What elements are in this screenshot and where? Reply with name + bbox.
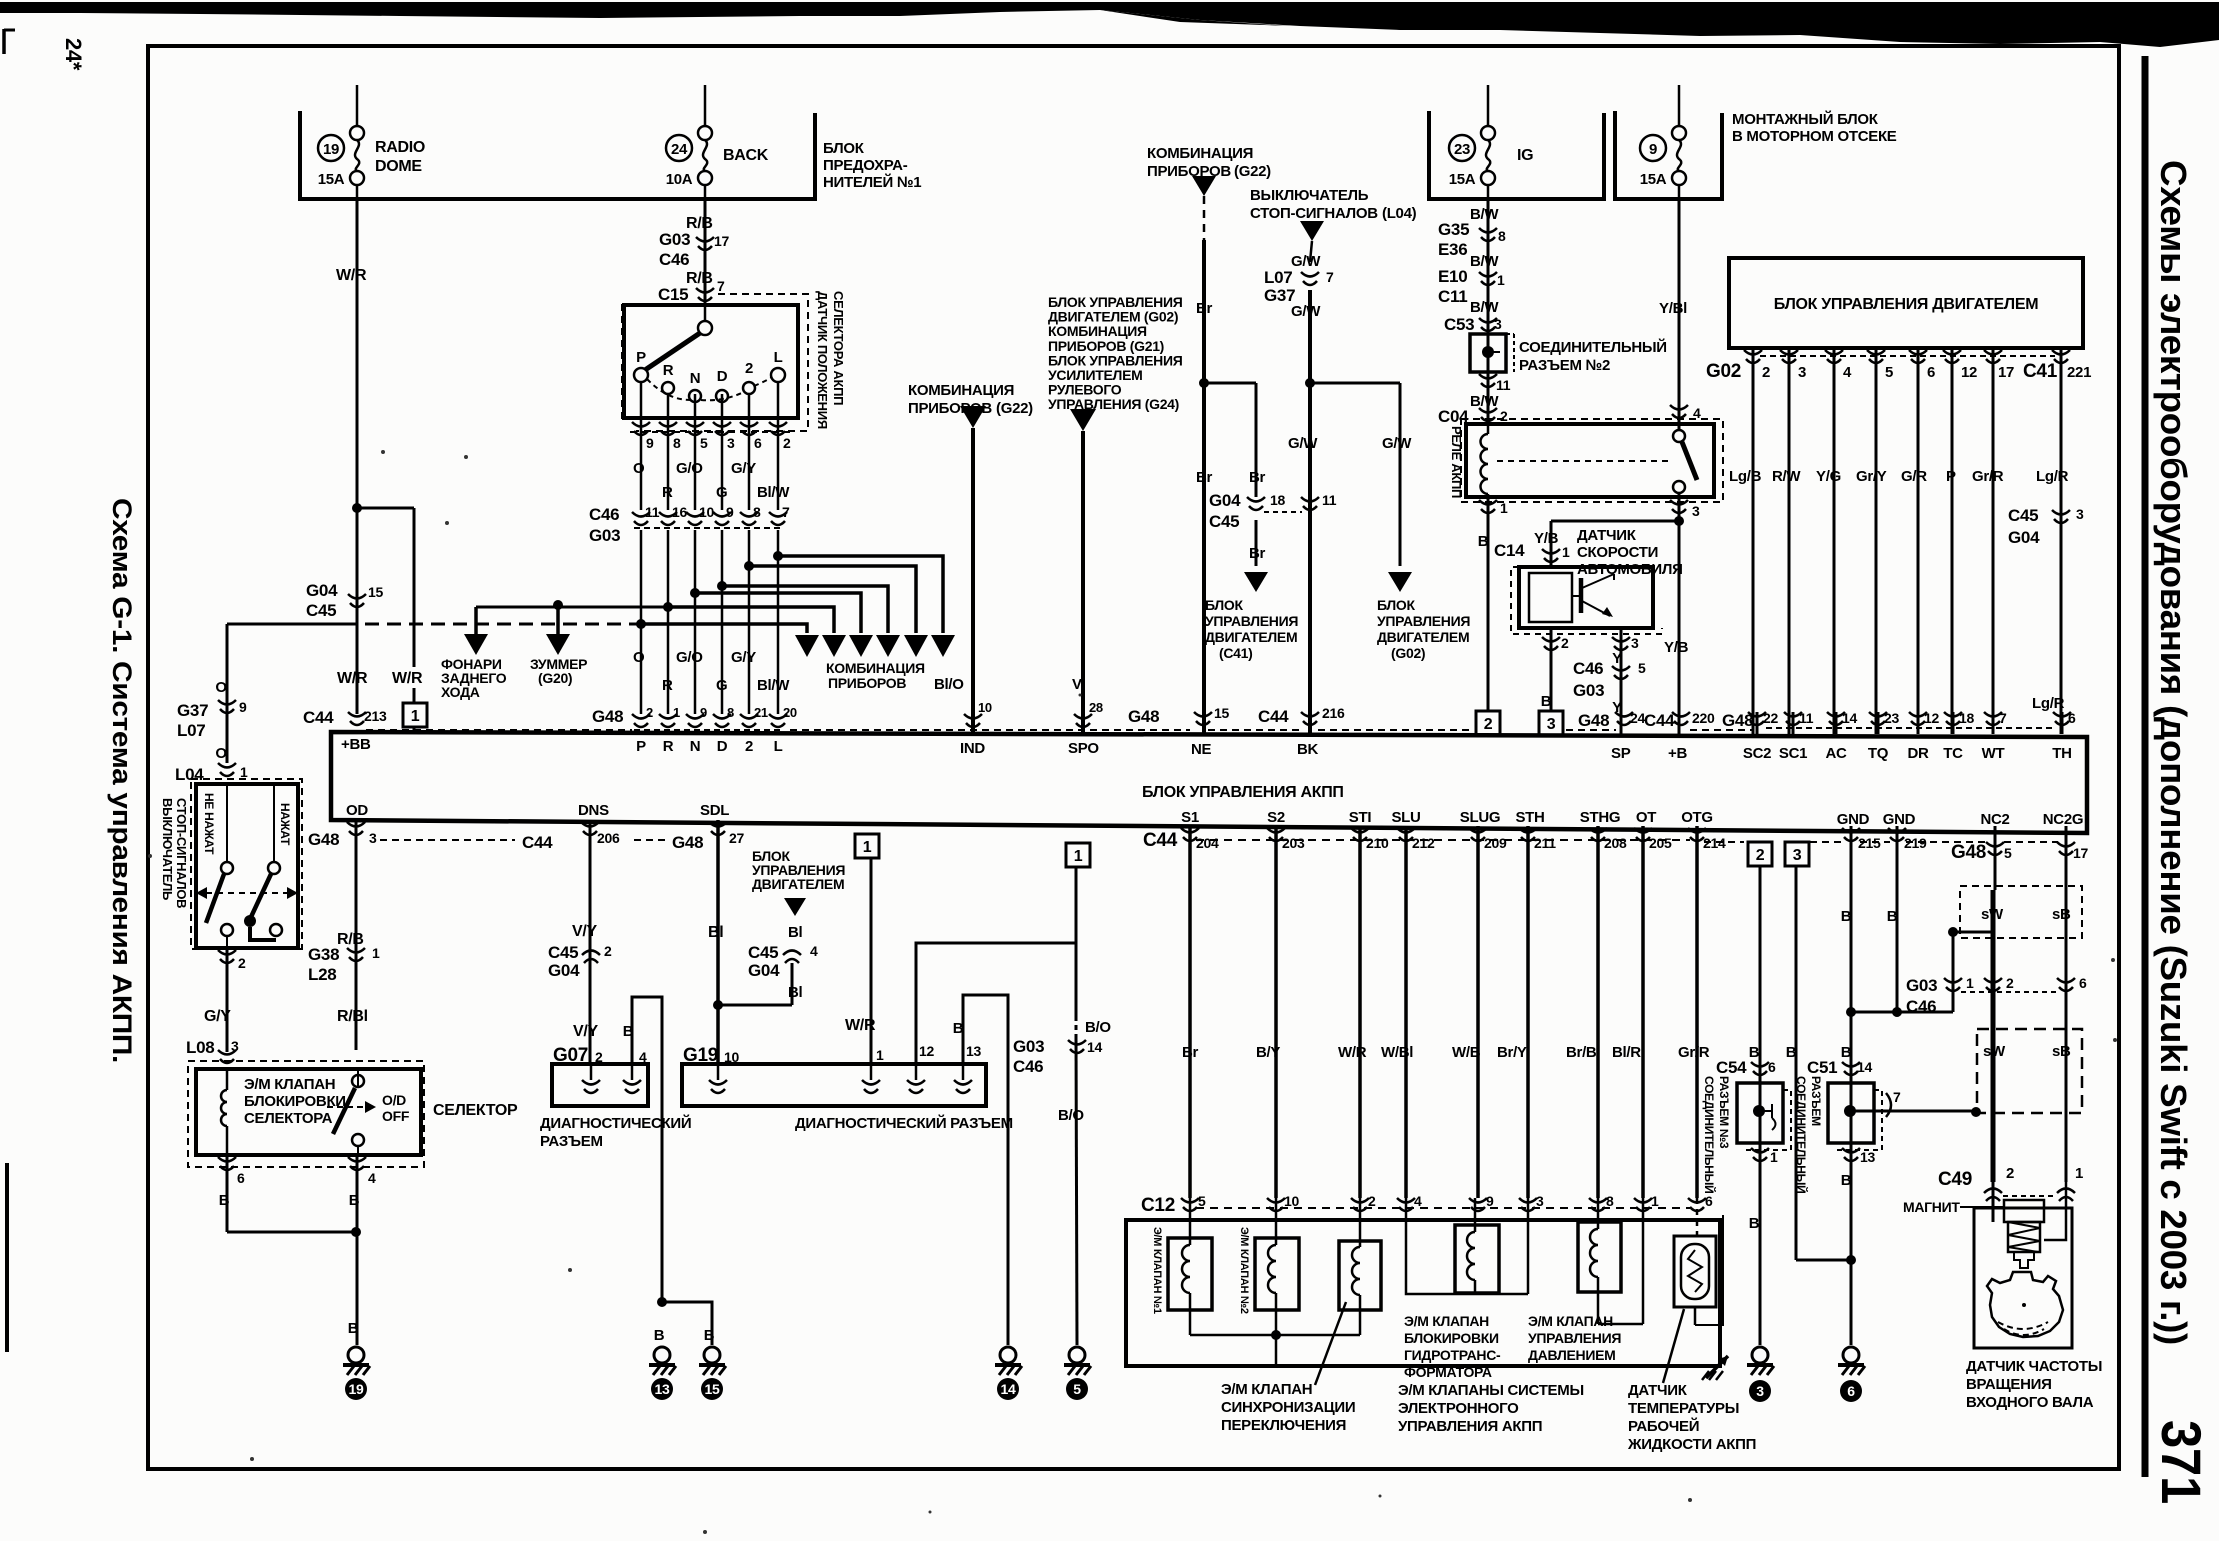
svg-text:W/R: W/R	[845, 1017, 876, 1034]
svg-text:G07: G07	[553, 1045, 588, 1066]
svg-text:Э/М КЛАПАН: Э/М КЛАПАН	[1528, 1313, 1613, 1329]
svg-text:B: B	[654, 1327, 665, 1344]
svg-text:5: 5	[1638, 660, 1646, 676]
svg-text:C49: C49	[1938, 1169, 1972, 1190]
svg-text:W/R: W/R	[392, 670, 423, 687]
svg-text:Lg/B: Lg/B	[1729, 468, 1762, 485]
svg-text:АВТОМОБИЛЯ: АВТОМОБИЛЯ	[1577, 561, 1683, 578]
svg-text:B: B	[1887, 908, 1898, 925]
svg-text:C44: C44	[522, 833, 553, 852]
svg-text:3: 3	[1793, 847, 1802, 864]
svg-text:11: 11	[1322, 492, 1337, 508]
svg-text:SLU: SLU	[1391, 809, 1420, 826]
svg-text:D: D	[717, 738, 728, 755]
svg-text:1: 1	[673, 705, 680, 720]
svg-text:C44: C44	[1258, 707, 1289, 726]
svg-text:C45: C45	[306, 601, 336, 620]
svg-text:213: 213	[364, 708, 387, 724]
svg-text:НЕ НАЖАТ: НЕ НАЖАТ	[202, 793, 216, 855]
svg-text:15: 15	[705, 1381, 720, 1397]
svg-text:C44: C44	[303, 708, 334, 727]
svg-text:ПРИБОРОВ: ПРИБОРОВ	[1147, 163, 1231, 180]
svg-text:B: B	[1478, 533, 1489, 550]
svg-text:ДВИГАТЕЛЕМ: ДВИГАТЕЛЕМ	[1205, 629, 1297, 645]
svg-text:8: 8	[1498, 228, 1506, 244]
svg-text:15A: 15A	[318, 171, 345, 188]
svg-text:TC: TC	[1943, 745, 1963, 762]
svg-text:216: 216	[1322, 705, 1345, 721]
svg-text:5: 5	[1198, 1193, 1206, 1209]
svg-text:13: 13	[1860, 1149, 1875, 1165]
svg-text:SP: SP	[1611, 745, 1631, 762]
svg-text:15: 15	[368, 584, 383, 600]
svg-text:220: 220	[1692, 710, 1715, 726]
svg-text:КОМБИНАЦИЯ: КОМБИНАЦИЯ	[1147, 145, 1253, 162]
svg-text:D: D	[717, 368, 728, 385]
svg-text:9: 9	[1649, 141, 1657, 158]
svg-text:7: 7	[1999, 710, 2007, 726]
svg-text:G04: G04	[2008, 528, 2040, 547]
svg-text:B/W: B/W	[1470, 393, 1499, 410]
svg-text:P: P	[1946, 468, 1956, 485]
svg-text:Y/B: Y/B	[1664, 639, 1689, 656]
svg-text:1: 1	[1074, 848, 1083, 865]
svg-text:БЛОКИРОВКИ: БЛОКИРОВКИ	[1404, 1330, 1499, 1346]
svg-text:GND: GND	[1837, 811, 1870, 828]
svg-text:6: 6	[1847, 1383, 1855, 1399]
svg-text:ЖИДКОСТИ АКПП: ЖИДКОСТИ АКПП	[1627, 1436, 1756, 1453]
svg-text:G37: G37	[177, 701, 208, 720]
svg-text:B: B	[1841, 1172, 1852, 1189]
svg-text:R/B: R/B	[686, 270, 713, 287]
svg-text:10: 10	[1284, 1193, 1299, 1209]
svg-text:28: 28	[1089, 700, 1103, 715]
svg-text:B: B	[1749, 1044, 1760, 1061]
svg-text:ДАТЧИК: ДАТЧИК	[1577, 527, 1637, 544]
svg-text:УПРАВЛЕНИЯ: УПРАВЛЕНИЯ	[1528, 1330, 1621, 1346]
svg-text:IND: IND	[960, 740, 985, 757]
svg-text:Bl/O: Bl/O	[934, 676, 964, 693]
svg-text:КОМБИНАЦИЯ: КОМБИНАЦИЯ	[826, 660, 925, 676]
svg-text:24*: 24*	[61, 38, 86, 71]
svg-text:ДАТЧИК: ДАТЧИК	[1628, 1382, 1688, 1399]
svg-text:Э/М КЛАПАН №2: Э/М КЛАПАН №2	[1238, 1227, 1250, 1314]
svg-text:(G22): (G22)	[996, 400, 1033, 417]
svg-text:15: 15	[1214, 705, 1229, 721]
svg-text:6: 6	[1705, 1193, 1713, 1209]
svg-text:4: 4	[1414, 1193, 1422, 1209]
svg-text:L04: L04	[175, 765, 204, 784]
svg-text:2: 2	[604, 943, 612, 959]
svg-text:12: 12	[1924, 710, 1939, 726]
svg-text:AC: AC	[1825, 745, 1847, 762]
svg-text:3: 3	[1798, 364, 1806, 381]
svg-text:20: 20	[783, 705, 797, 720]
svg-text:Bl/W: Bl/W	[757, 677, 790, 694]
svg-text:13: 13	[966, 1043, 981, 1059]
svg-text:G03: G03	[1013, 1037, 1044, 1056]
svg-text:1: 1	[411, 708, 420, 725]
svg-text:B/W: B/W	[1470, 253, 1499, 270]
svg-text:G04: G04	[1209, 491, 1241, 510]
svg-text:+BB: +BB	[341, 736, 371, 753]
svg-text:5: 5	[1885, 364, 1893, 381]
svg-text:L08: L08	[186, 1038, 214, 1057]
svg-text:C45: C45	[748, 943, 778, 962]
svg-text:Y/G: Y/G	[1816, 468, 1841, 485]
svg-text:УПРАВЛЕНИЯ АКПП: УПРАВЛЕНИЯ АКПП	[1398, 1418, 1542, 1435]
svg-text:Gr/R: Gr/R	[1678, 1044, 1710, 1061]
svg-text:V/Y: V/Y	[573, 1023, 599, 1040]
svg-text:СЕЛЕКТОР: СЕЛЕКТОР	[433, 1102, 518, 1119]
svg-text:OTG: OTG	[1681, 809, 1713, 826]
svg-text:10: 10	[724, 1049, 739, 1065]
svg-text:Lg/R: Lg/R	[2036, 468, 2069, 485]
svg-text:БЛОК: БЛОК	[1377, 597, 1416, 613]
svg-text:OD: OD	[346, 802, 368, 819]
svg-text:SDL: SDL	[700, 802, 729, 819]
svg-text:Y/B: Y/B	[1534, 530, 1559, 547]
svg-text:B/W: B/W	[1470, 206, 1499, 223]
svg-text:СТОП-СИГНАЛОВ: СТОП-СИГНАЛОВ	[174, 798, 189, 908]
svg-text:371: 371	[2150, 1420, 2213, 1504]
svg-text:9: 9	[700, 705, 707, 720]
svg-text:ДИАГНОСТИЧЕСКИЙ РАЗЪЕМ: ДИАГНОСТИЧЕСКИЙ РАЗЪЕМ	[795, 1114, 1013, 1132]
svg-text:G/W: G/W	[1288, 435, 1318, 452]
svg-text:W/B: W/B	[1452, 1044, 1481, 1061]
svg-text:ГИДРОТРАНС-: ГИДРОТРАНС-	[1404, 1347, 1501, 1363]
svg-text:C46: C46	[1573, 659, 1603, 678]
svg-text:Gr/Y: Gr/Y	[1856, 468, 1887, 485]
svg-text:РАБОЧЕЙ: РАБОЧЕЙ	[1628, 1417, 1699, 1435]
svg-text:sB: sB	[2052, 906, 2071, 923]
svg-text:14: 14	[1087, 1039, 1102, 1055]
svg-text:G/Y: G/Y	[731, 460, 756, 477]
svg-text:СКОРОСТИ: СКОРОСТИ	[1577, 544, 1658, 561]
svg-text:6: 6	[1768, 1059, 1776, 1075]
svg-text:B/O: B/O	[1058, 1107, 1084, 1124]
svg-text:10A: 10A	[666, 171, 693, 188]
svg-text:13: 13	[655, 1381, 670, 1397]
svg-text:3: 3	[1631, 635, 1639, 651]
svg-text:B: B	[704, 1327, 715, 1344]
svg-text:10: 10	[699, 504, 714, 520]
svg-text:4: 4	[1693, 405, 1701, 421]
svg-text:2: 2	[646, 705, 653, 720]
svg-text:SC2: SC2	[1743, 745, 1771, 762]
svg-text:3: 3	[1536, 1193, 1544, 1209]
svg-text:Э/М КЛАПАН: Э/М КЛАПАН	[1221, 1381, 1312, 1398]
svg-text:sW: sW	[1983, 1043, 2006, 1060]
svg-text:Br: Br	[1196, 469, 1213, 486]
svg-text:Bl/W: Bl/W	[757, 484, 790, 501]
svg-text:Bl: Bl	[708, 924, 723, 941]
svg-text:P: P	[636, 349, 646, 366]
svg-text:G/R: G/R	[1901, 468, 1927, 485]
svg-text:3: 3	[369, 830, 377, 846]
svg-text:ВЫКЛЮЧАТЕЛЬ: ВЫКЛЮЧАТЕЛЬ	[1250, 187, 1369, 204]
svg-text:14: 14	[1842, 710, 1857, 726]
svg-text:ПРИБОРОВ: ПРИБОРОВ	[828, 675, 906, 691]
svg-text:1: 1	[2075, 1165, 2083, 1182]
svg-text:Bl: Bl	[788, 924, 803, 941]
svg-text:НАЖАТ: НАЖАТ	[278, 803, 292, 846]
svg-text:(G20): (G20)	[538, 670, 572, 686]
svg-text:S2: S2	[1267, 809, 1285, 826]
svg-text:DOME: DOME	[375, 158, 422, 175]
svg-text:G/W: G/W	[1291, 303, 1321, 320]
svg-text:ХОДА: ХОДА	[441, 684, 480, 700]
svg-text:L: L	[774, 738, 783, 755]
svg-text:БЛОК УПРАВЛЕНИЯ ДВИГАТЕЛЕМ: БЛОК УПРАВЛЕНИЯ ДВИГАТЕЛЕМ	[1774, 296, 2038, 313]
svg-text:204: 204	[1196, 835, 1219, 851]
svg-text:4: 4	[639, 1049, 647, 1065]
svg-text:BK: BK	[1297, 741, 1319, 758]
svg-text:OT: OT	[1636, 809, 1656, 826]
svg-text:5: 5	[1073, 1381, 1081, 1397]
svg-text:2: 2	[1561, 635, 1569, 651]
svg-text:9: 9	[1486, 1193, 1494, 1209]
svg-text:G/O: G/O	[676, 649, 703, 666]
svg-text:203: 203	[1282, 835, 1305, 851]
svg-text:2: 2	[783, 435, 791, 451]
svg-text:C44: C44	[1143, 830, 1178, 851]
svg-text:C44: C44	[1644, 711, 1675, 730]
svg-text:B: B	[1541, 693, 1552, 710]
svg-text:TH: TH	[2052, 745, 2071, 762]
svg-text:219: 219	[1904, 835, 1927, 851]
svg-text:ДВИГАТЕЛЕМ: ДВИГАТЕЛЕМ	[752, 876, 844, 892]
svg-text:2: 2	[2006, 1165, 2014, 1182]
svg-text:1: 1	[1562, 544, 1570, 560]
svg-text:G04: G04	[748, 961, 780, 980]
svg-text:O: O	[215, 679, 227, 696]
svg-text:12: 12	[1961, 364, 1977, 381]
svg-text:3: 3	[1756, 1383, 1764, 1399]
svg-text:6: 6	[2068, 710, 2076, 726]
svg-text:G48: G48	[1128, 707, 1159, 726]
svg-text:МОНТАЖНЫЙ БЛОК: МОНТАЖНЫЙ БЛОК	[1732, 110, 1879, 128]
svg-text:G48: G48	[1578, 711, 1609, 730]
svg-text:Br: Br	[1182, 1044, 1199, 1061]
svg-text:16: 16	[672, 504, 687, 520]
svg-text:O: O	[633, 649, 645, 666]
svg-text:SPO: SPO	[1068, 740, 1099, 757]
svg-text:МАГНИТ: МАГНИТ	[1903, 1199, 1960, 1215]
svg-text:3: 3	[1547, 716, 1556, 733]
svg-text:УПРАВЛЕНИЯ (G24): УПРАВЛЕНИЯ (G24)	[1048, 396, 1179, 412]
svg-text:W/R: W/R	[336, 267, 367, 284]
svg-text:СИНХРОНИЗАЦИИ: СИНХРОНИЗАЦИИ	[1221, 1399, 1355, 1416]
svg-text:18: 18	[1959, 710, 1974, 726]
svg-text:1: 1	[372, 945, 380, 961]
svg-text:STI: STI	[1349, 809, 1372, 826]
svg-text:2: 2	[745, 360, 753, 377]
svg-text:B/O: B/O	[1085, 1019, 1111, 1036]
svg-text:R: R	[663, 738, 674, 755]
svg-text:СОЕДИНИТЕЛЬНЫЙ: СОЕДИНИТЕЛЬНЫЙ	[1519, 338, 1667, 356]
svg-text:NC2G: NC2G	[2043, 811, 2083, 828]
svg-text:NC2: NC2	[1980, 811, 2009, 828]
svg-text:4: 4	[810, 943, 818, 959]
svg-text:S1: S1	[1181, 809, 1199, 826]
svg-text:ДИАГНОСТИЧЕСКИЙ: ДИАГНОСТИЧЕСКИЙ	[540, 1114, 691, 1132]
svg-text:B: B	[219, 1192, 230, 1209]
svg-text:L07: L07	[1264, 268, 1292, 287]
svg-text:STHG: STHG	[1580, 809, 1620, 826]
svg-text:(G02): (G02)	[1391, 645, 1425, 661]
svg-text:206: 206	[597, 830, 620, 846]
svg-text:G04: G04	[306, 581, 338, 600]
svg-text:ДВИГАТЕЛЕМ (G02): ДВИГАТЕЛЕМ (G02)	[1048, 309, 1178, 325]
svg-text:Br/Y: Br/Y	[1497, 1044, 1527, 1061]
svg-text:2: 2	[1484, 716, 1493, 733]
svg-text:P: P	[636, 738, 646, 755]
svg-text:2: 2	[1500, 408, 1508, 424]
svg-text:21: 21	[754, 705, 768, 720]
svg-text:O: O	[215, 745, 227, 762]
svg-text:B/Y: B/Y	[1256, 1044, 1280, 1061]
svg-text:C46: C46	[1906, 997, 1936, 1016]
svg-text:Э/М КЛАПАН: Э/М КЛАПАН	[1404, 1313, 1489, 1329]
svg-text:214: 214	[1703, 835, 1726, 851]
svg-text:19: 19	[349, 1381, 364, 1397]
svg-text:КОМБИНАЦИЯ: КОМБИНАЦИЯ	[908, 382, 1014, 399]
svg-text:2: 2	[1368, 1193, 1376, 1209]
svg-text:R: R	[663, 362, 674, 379]
svg-text:12: 12	[919, 1043, 934, 1059]
svg-text:R/W: R/W	[1772, 468, 1801, 485]
svg-text:B: B	[348, 1320, 359, 1337]
svg-text:B: B	[1786, 1044, 1797, 1061]
svg-text:R/B: R/B	[337, 931, 364, 948]
svg-text:ЭЛЕКТРОННОГО: ЭЛЕКТРОННОГО	[1398, 1400, 1519, 1417]
svg-text:ПЕРЕКЛЮЧЕНИЯ: ПЕРЕКЛЮЧЕНИЯ	[1221, 1417, 1346, 1434]
svg-text:2: 2	[1756, 847, 1765, 864]
svg-text:ДАТЧИК ЧАСТОТЫ: ДАТЧИК ЧАСТОТЫ	[1966, 1358, 2102, 1375]
svg-text:РЕЛЕ АКПП: РЕЛЕ АКПП	[1449, 426, 1464, 498]
svg-text:C12: C12	[1141, 1195, 1175, 1216]
svg-text:8: 8	[673, 435, 681, 451]
svg-text:3: 3	[1692, 503, 1700, 519]
svg-text:C45: C45	[2008, 506, 2038, 525]
svg-text:Gr/R: Gr/R	[1972, 468, 2004, 485]
svg-text:E36: E36	[1438, 240, 1467, 259]
svg-text:СОЕДИНИТЕЛЬНЫЙ: СОЕДИНИТЕЛЬНЫЙ	[1702, 1076, 1717, 1193]
svg-text:Bl: Bl	[788, 984, 803, 1001]
svg-text:УСИЛИТЕЛЕМ: УСИЛИТЕЛЕМ	[1048, 367, 1142, 383]
svg-text:G: G	[716, 677, 727, 694]
svg-text:STH: STH	[1515, 809, 1544, 826]
svg-text:SC1: SC1	[1779, 745, 1807, 762]
svg-text:G04: G04	[548, 961, 580, 980]
svg-text:C51: C51	[1807, 1058, 1837, 1077]
svg-text:L07: L07	[177, 721, 205, 740]
svg-text:ФОРМАТОРА: ФОРМАТОРА	[1404, 1364, 1492, 1380]
svg-text:G48: G48	[592, 707, 623, 726]
svg-text:W/Bl: W/Bl	[1381, 1044, 1413, 1061]
svg-text:G19: G19	[683, 1045, 718, 1066]
svg-text:G03: G03	[659, 230, 690, 249]
svg-text:1: 1	[240, 764, 248, 780]
svg-text:N: N	[690, 738, 701, 755]
svg-text:8: 8	[753, 504, 761, 520]
svg-text:22: 22	[1763, 710, 1778, 726]
svg-text:(G22): (G22)	[1234, 163, 1271, 180]
svg-text:ДВИГАТЕЛЕМ: ДВИГАТЕЛЕМ	[1377, 629, 1469, 645]
svg-text:G03: G03	[589, 526, 620, 545]
svg-text:G/Y: G/Y	[731, 649, 756, 666]
svg-text:10: 10	[978, 700, 992, 715]
svg-text:УПРАВЛЕНИЯ: УПРАВЛЕНИЯ	[1205, 613, 1298, 629]
svg-text:ПРИБОРОВ (G21): ПРИБОРОВ (G21)	[1048, 338, 1164, 354]
svg-text:5: 5	[2004, 845, 2012, 861]
svg-text:O: O	[633, 460, 645, 477]
svg-text:L: L	[774, 349, 783, 366]
svg-text:23: 23	[1454, 141, 1470, 158]
svg-text:7: 7	[1893, 1089, 1901, 1105]
svg-text:1: 1	[1770, 1149, 1778, 1165]
svg-text:G02: G02	[1706, 361, 1741, 382]
svg-text:2: 2	[595, 1049, 603, 1065]
svg-text:27: 27	[729, 830, 744, 846]
svg-text:2: 2	[2006, 975, 2014, 991]
svg-text:РАЗЪЕМ: РАЗЪЕМ	[1809, 1076, 1823, 1126]
svg-text:+B: +B	[1668, 745, 1687, 762]
svg-text:G48: G48	[308, 830, 339, 849]
svg-text:B/W: B/W	[1470, 299, 1499, 316]
svg-text:6: 6	[754, 435, 762, 451]
svg-text:ТЕМПЕРАТУРЫ: ТЕМПЕРАТУРЫ	[1628, 1400, 1739, 1417]
svg-text:1: 1	[1966, 975, 1974, 991]
svg-text:B: B	[1749, 1215, 1760, 1232]
svg-text:B: B	[953, 1020, 964, 1037]
svg-text:СОЕДИНИТЕЛЬНЫЙ: СОЕДИНИТЕЛЬНЫЙ	[1794, 1076, 1809, 1193]
svg-text:НИТЕЛЕЙ №1: НИТЕЛЕЙ №1	[823, 173, 921, 191]
svg-text:ВЫКЛЮЧАТЕЛЬ: ВЫКЛЮЧАТЕЛЬ	[160, 798, 175, 900]
svg-text:8: 8	[1606, 1193, 1614, 1209]
svg-text:205: 205	[1649, 835, 1672, 851]
svg-text:7: 7	[717, 278, 725, 294]
svg-text:DR: DR	[1907, 745, 1929, 762]
svg-text:Br: Br	[1196, 300, 1213, 317]
svg-text:ВРАЩЕНИЯ: ВРАЩЕНИЯ	[1966, 1376, 2052, 1393]
svg-text:212: 212	[1412, 835, 1435, 851]
svg-text:РАЗЪЕМ: РАЗЪЕМ	[540, 1133, 603, 1150]
svg-text:SLUG: SLUG	[1460, 809, 1500, 826]
svg-text:BACK: BACK	[723, 147, 769, 164]
svg-text:G/W: G/W	[1291, 253, 1321, 270]
svg-text:G/W: G/W	[1382, 435, 1412, 452]
svg-text:C45: C45	[548, 943, 578, 962]
svg-text:7: 7	[782, 504, 790, 520]
svg-text:G48: G48	[672, 833, 703, 852]
svg-text:Э/М КЛАПАН: Э/М КЛАПАН	[244, 1076, 335, 1093]
svg-text:221: 221	[2067, 364, 2091, 381]
svg-text:3: 3	[727, 435, 735, 451]
svg-text:G35: G35	[1438, 220, 1469, 239]
svg-text:C15: C15	[658, 285, 688, 304]
svg-text:11: 11	[1496, 377, 1511, 393]
svg-text:7: 7	[1326, 269, 1334, 285]
svg-text:C46: C46	[659, 250, 689, 269]
svg-text:Схема G-1. Система управления: Схема G-1. Система управления АКПП.	[107, 498, 137, 1063]
svg-text:Схемы электрооборудования (доп: Схемы электрооборудования (дополнение (S…	[2153, 160, 2194, 1345]
svg-text:G/O: G/O	[676, 460, 703, 477]
svg-text:6: 6	[2079, 975, 2087, 991]
svg-text:15A: 15A	[1640, 171, 1667, 188]
svg-text:15A: 15A	[1449, 171, 1476, 188]
